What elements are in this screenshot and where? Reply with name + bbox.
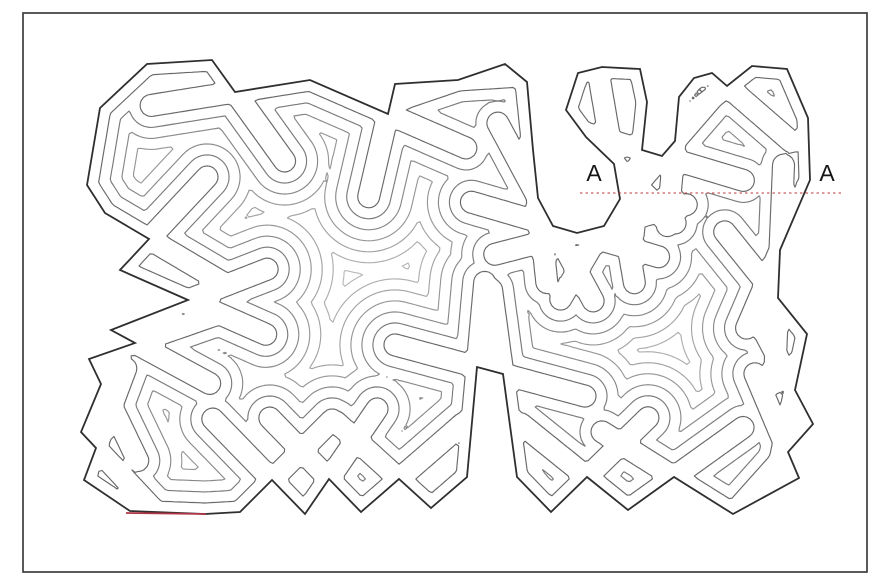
contour-map-figure: A A bbox=[0, 0, 890, 588]
section-label-a-right: A bbox=[819, 160, 835, 186]
contour-level-6 bbox=[324, 242, 689, 365]
contour-level-1 bbox=[98, 72, 799, 504]
red-mark-line bbox=[126, 513, 206, 514]
contour-lines bbox=[81, 60, 813, 514]
contour-level-5 bbox=[245, 207, 702, 391]
section-label-a-left: A bbox=[586, 160, 602, 186]
contour-level-7 bbox=[343, 263, 410, 286]
scanned-contour-figure: A A bbox=[0, 0, 890, 588]
